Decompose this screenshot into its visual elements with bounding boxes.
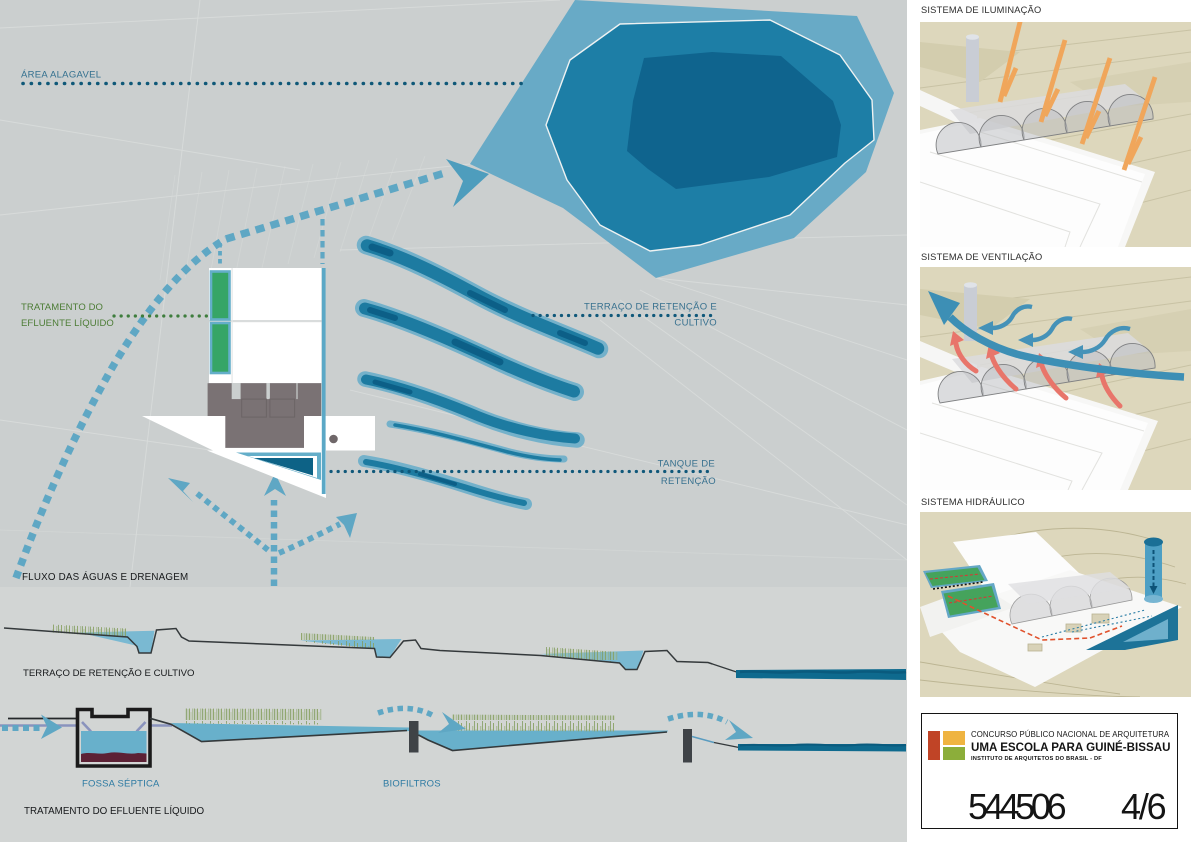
svg-text:TRATAMENTO DO EFLUENTE LÍQUIDO: TRATAMENTO DO EFLUENTE LÍQUIDO xyxy=(24,806,205,817)
svg-text:ÁREA ALAGAVEL: ÁREA ALAGAVEL xyxy=(21,70,101,81)
svg-text:TRATAMENTO DO: TRATAMENTO DO xyxy=(21,302,103,313)
svg-text:RETENÇÃO: RETENÇÃO xyxy=(661,476,716,487)
svg-text:TANQUE DE: TANQUE DE xyxy=(658,459,715,470)
svg-text:CULTIVO: CULTIVO xyxy=(674,318,717,329)
svg-text:TERRAÇO DE RETENÇÃO E CULTIVO: TERRAÇO DE RETENÇÃO E CULTIVO xyxy=(23,668,194,679)
svg-text:EFLUENTE LÍQUIDO: EFLUENTE LÍQUIDO xyxy=(21,318,114,329)
svg-text:BIOFILTROS: BIOFILTROS xyxy=(383,779,441,790)
svg-text:FLUXO DAS ÁGUAS E DRENAGEM: FLUXO DAS ÁGUAS E DRENAGEM xyxy=(22,572,188,583)
svg-text:FOSSA SÉPTICA: FOSSA SÉPTICA xyxy=(82,779,160,790)
svg-text:TERRAÇO DE RETENÇÃO E: TERRAÇO DE RETENÇÃO E xyxy=(584,302,717,313)
